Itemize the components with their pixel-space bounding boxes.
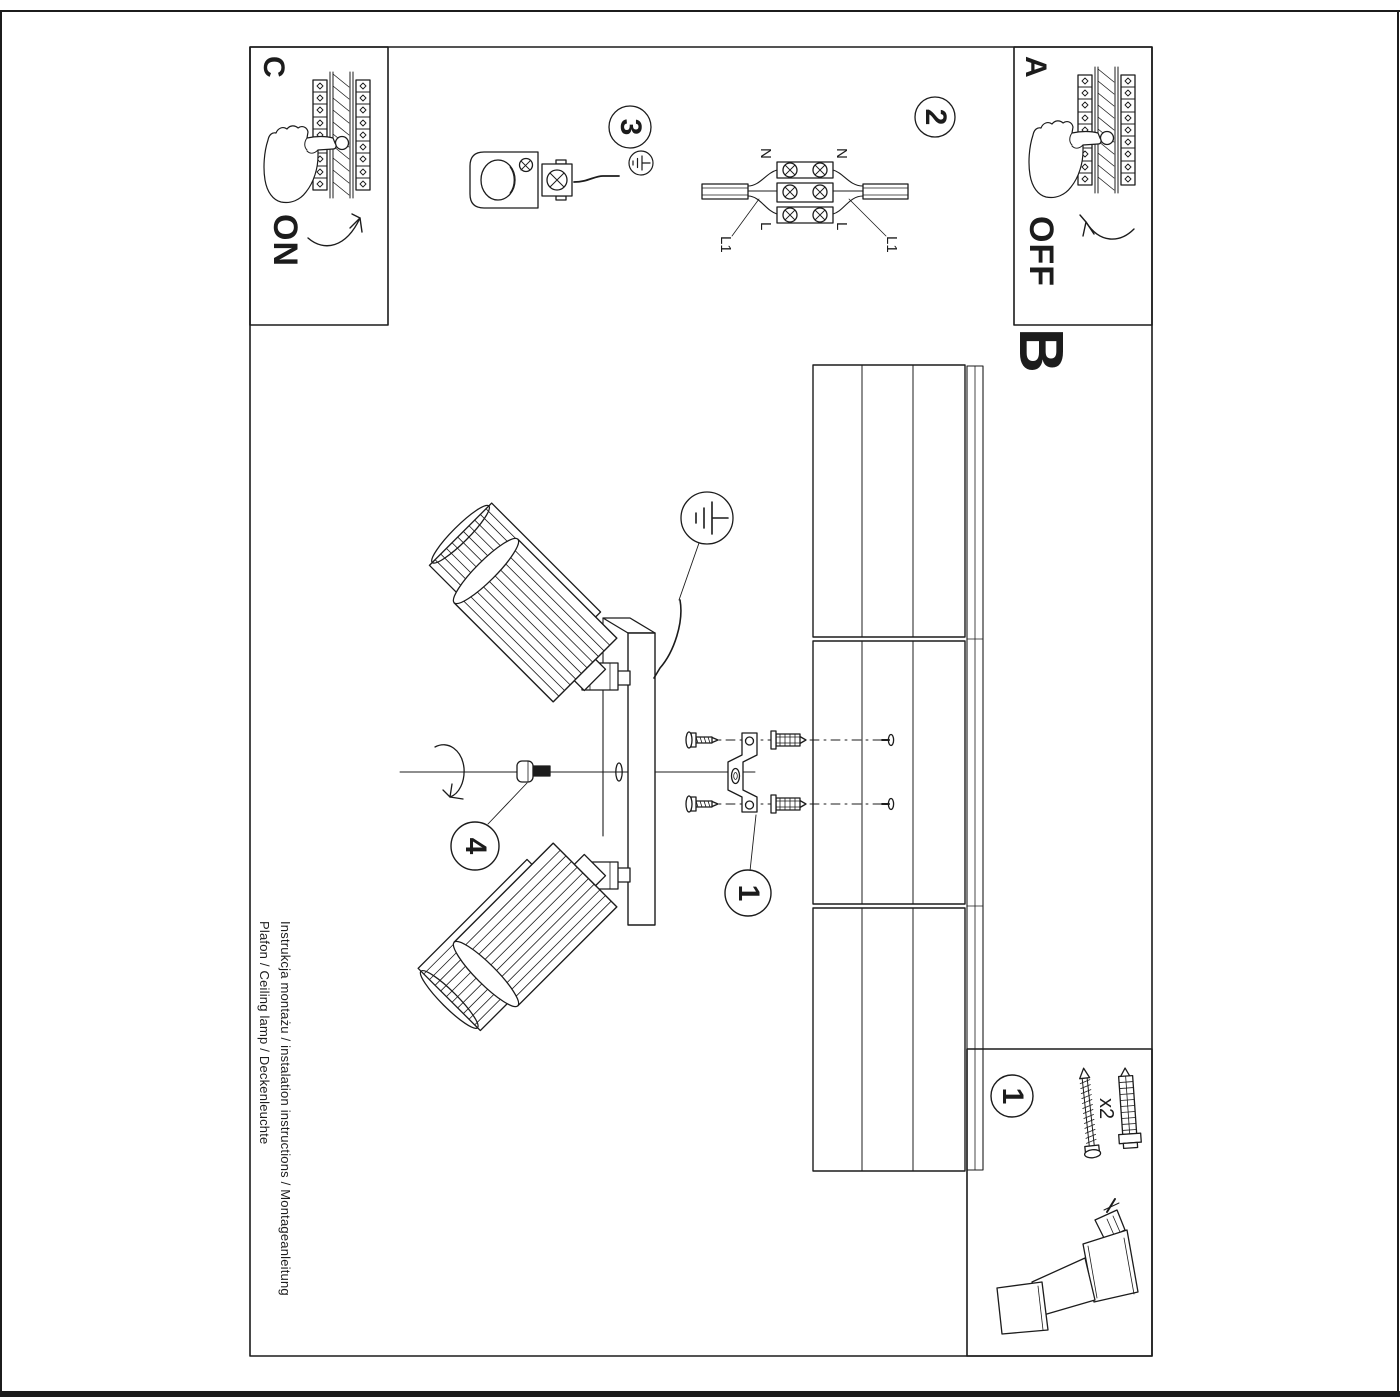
drill-icon <box>997 1199 1138 1334</box>
breaker-panel-c <box>264 72 370 203</box>
panel-screw-icon <box>882 735 894 810</box>
on-arrow-icon <box>308 214 362 246</box>
earth-icon-small <box>633 156 650 170</box>
step3-number: 3 <box>610 107 650 147</box>
fixing-bolt-icon <box>517 761 550 782</box>
title-line-2: Plafon / Ceiling lamp / Deckenleuchte <box>257 921 272 1144</box>
breaker-panel-a <box>1029 67 1135 198</box>
rotated-sheet-layer: A B C OFF ON 2 3 4 1 1 N N L L L1 L1 x2 … <box>0 0 1400 1400</box>
mounting-bracket <box>728 733 757 812</box>
lamp-shade-left <box>417 497 631 711</box>
power-off-label: OFF <box>1021 216 1060 287</box>
step2-number: 2 <box>915 97 955 137</box>
power-on-label: ON <box>265 214 304 267</box>
wire-label-l-top: L <box>833 222 850 230</box>
wire-label-l-bottom: L <box>757 222 774 230</box>
wire-label-n-bottom: N <box>757 148 774 159</box>
instruction-sheet: A B C OFF ON 2 3 4 1 1 N N L L L1 L1 x2 … <box>0 0 1400 1400</box>
section-label-a: A <box>1018 56 1052 78</box>
ceiling-planks <box>813 365 983 1171</box>
lamp-shade-right <box>412 828 630 1042</box>
ground-wire <box>654 492 733 678</box>
pointing-hand-icon <box>1029 121 1101 198</box>
wire-label-n-top: N <box>833 148 850 159</box>
wire-label-l1-top: L1 <box>883 236 900 253</box>
parts-box-number: 1 <box>991 1075 1033 1117</box>
section-label-b: B <box>1005 328 1076 373</box>
title-line-1: Instrukcja montażu / instalation instruc… <box>278 921 293 1296</box>
wall-anchor-icon <box>771 731 806 813</box>
hardware-quantity: x2 <box>1094 1098 1117 1119</box>
wire-label-l1-bottom: L1 <box>717 236 734 253</box>
line-art <box>0 0 1400 1400</box>
wall-plug-icon <box>1114 1067 1142 1148</box>
pointing-hand-icon <box>264 126 336 203</box>
step4-number: 4 <box>453 824 497 868</box>
frame-group <box>250 47 1152 1356</box>
off-arrow-icon <box>1080 215 1134 239</box>
section-label-c: C <box>256 56 290 78</box>
step1-number: 1 <box>726 871 770 915</box>
